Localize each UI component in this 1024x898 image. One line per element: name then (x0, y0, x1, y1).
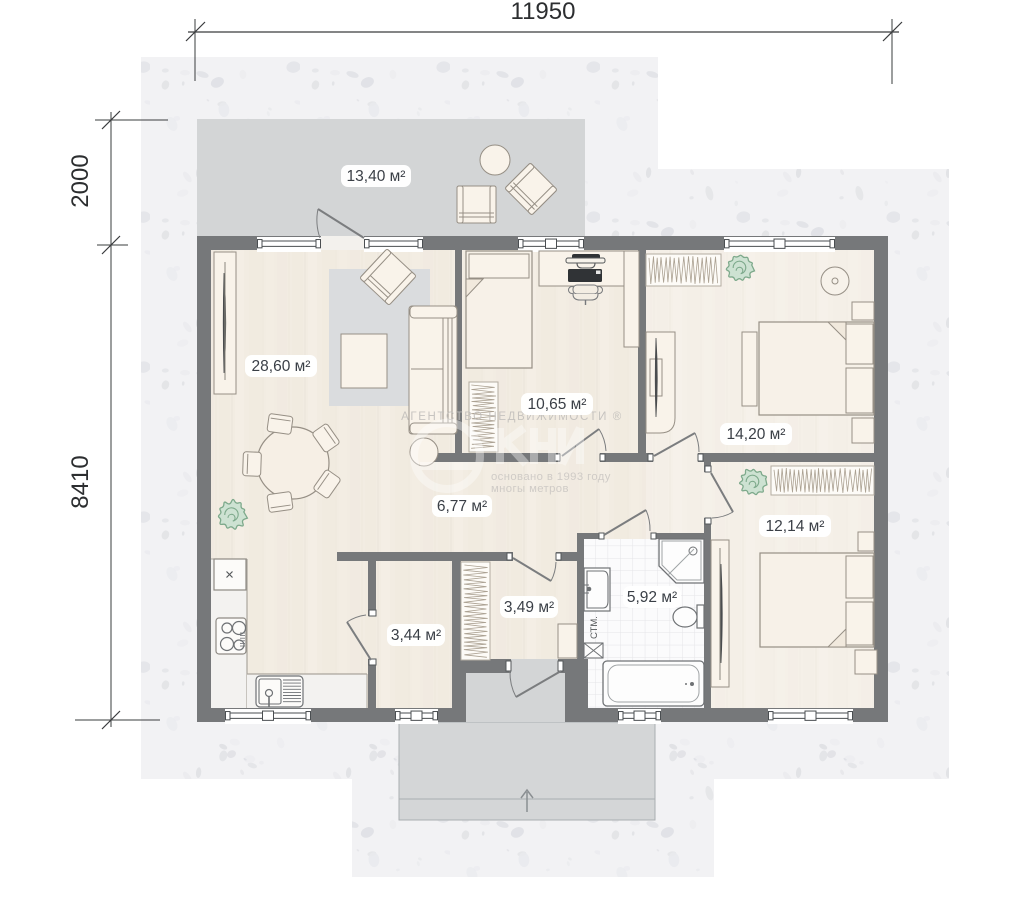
svg-text:3,44 м²: 3,44 м² (391, 627, 441, 644)
svg-text:основано в 1993 году: основано в 1993 году (491, 471, 611, 483)
svg-text:10,65 м²: 10,65 м² (528, 396, 587, 413)
svg-text:6,77 м²: 6,77 м² (437, 498, 487, 515)
svg-text:28,60 м²: 28,60 м² (252, 358, 311, 375)
svg-text:12,14 м²: 12,14 м² (766, 518, 825, 535)
svg-text:2000: 2000 (67, 154, 94, 207)
svg-text:СТМ.: СТМ. (589, 616, 600, 639)
svg-text:5,92 м²: 5,92 м² (627, 589, 677, 606)
svg-text:многы метров: многы метров (491, 483, 569, 495)
svg-text:13,40 м²: 13,40 м² (347, 168, 406, 185)
svg-text:8410: 8410 (67, 455, 94, 508)
svg-text:11950: 11950 (511, 0, 576, 25)
svg-text:14,20 м²: 14,20 м² (727, 426, 786, 443)
svg-text:3,49 м²: 3,49 м² (504, 599, 554, 616)
